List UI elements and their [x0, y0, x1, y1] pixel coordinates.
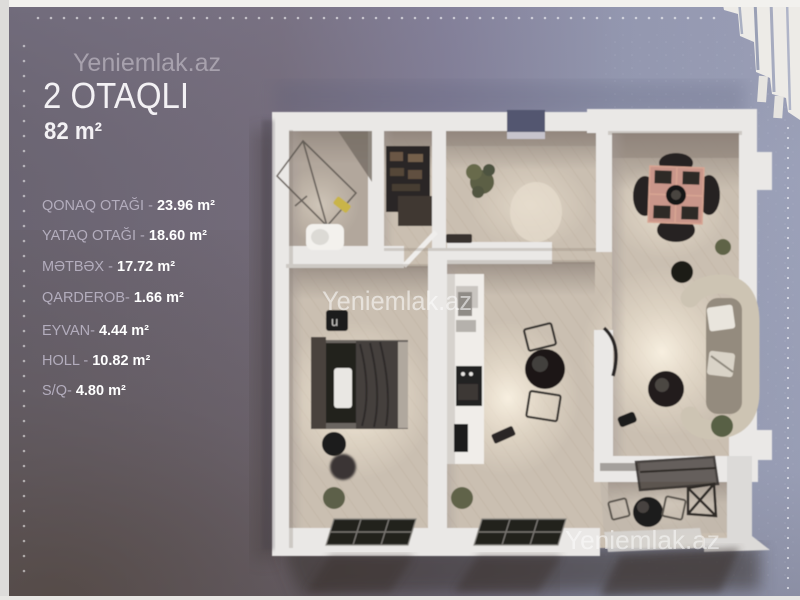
- svg-text:S/Q- 4.80 m²: S/Q- 4.80 m²: [42, 383, 126, 399]
- svg-text:Yeniemlak.az: Yeniemlak.az: [73, 49, 221, 77]
- svg-text:Yeniemlak.az: Yeniemlak.az: [565, 525, 720, 555]
- svg-text:2 OTAQLI: 2 OTAQLI: [43, 75, 189, 116]
- svg-text:EYVAN- 4.44 m²: EYVAN- 4.44 m²: [42, 323, 149, 339]
- svg-text:82 m²: 82 m²: [44, 118, 102, 145]
- svg-text:QONAQ OTAĞI - 23.96 m²: QONAQ OTAĞI - 23.96 m²: [42, 197, 215, 214]
- svg-text:u: u: [331, 314, 338, 329]
- svg-text:QARDEROB- 1.66 m²: QARDEROB- 1.66 m²: [42, 290, 184, 306]
- svg-text:YATAQ OTAĞI - 18.60 m²: YATAQ OTAĞI - 18.60 m²: [42, 227, 207, 244]
- svg-text:Yeniemlak.az: Yeniemlak.az: [322, 286, 472, 316]
- svg-text:HOLL - 10.82 m²: HOLL - 10.82 m²: [42, 353, 150, 369]
- svg-text:MƏTBƏX - 17.72 m²: MƏTBƏX - 17.72 m²: [42, 259, 175, 275]
